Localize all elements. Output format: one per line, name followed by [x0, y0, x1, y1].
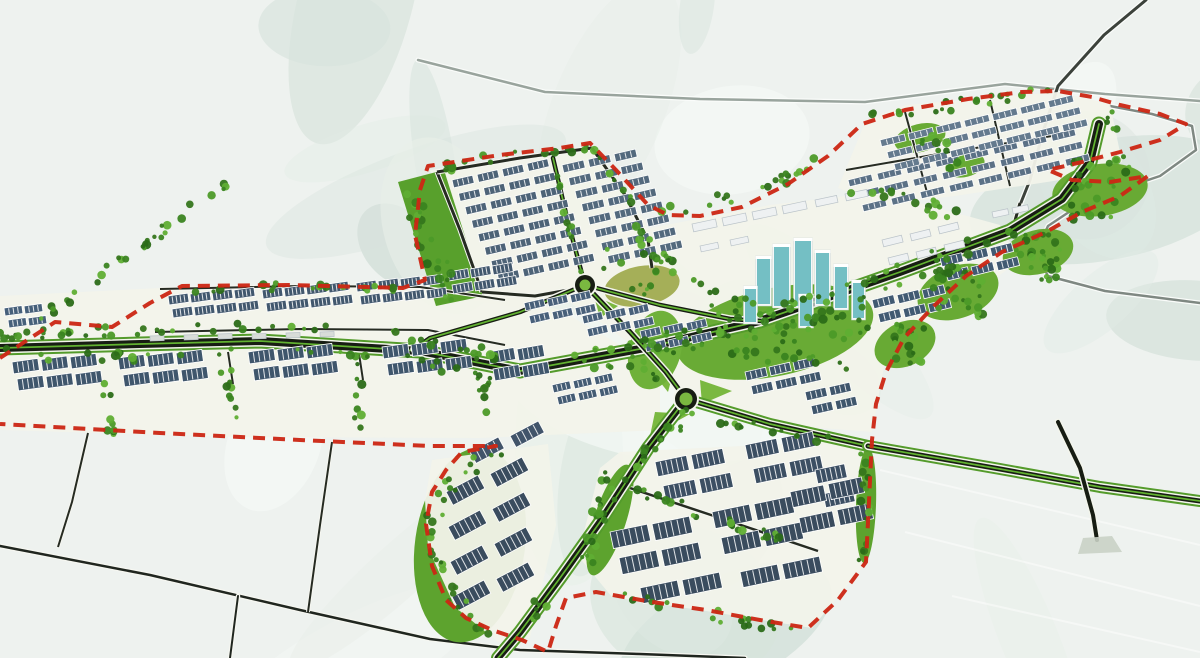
tree	[736, 302, 742, 308]
tree	[177, 214, 186, 223]
tree	[857, 497, 866, 506]
tree	[976, 284, 981, 289]
tree	[468, 462, 474, 468]
roadside-shed	[286, 333, 300, 338]
tree	[742, 347, 750, 355]
tree	[859, 468, 867, 476]
tree	[934, 258, 940, 264]
tree	[357, 424, 363, 430]
tree	[880, 192, 889, 201]
tree	[445, 260, 449, 264]
tree	[763, 533, 771, 541]
tree	[418, 337, 424, 343]
tree	[0, 334, 8, 342]
tree	[751, 420, 755, 424]
tree	[353, 392, 359, 398]
tree	[970, 279, 975, 284]
tree	[94, 279, 100, 285]
tree	[97, 271, 106, 280]
tree	[742, 295, 749, 302]
tree	[488, 160, 493, 165]
tree	[426, 341, 435, 350]
tree	[223, 382, 231, 390]
tree	[1005, 98, 1011, 104]
tree	[106, 415, 114, 423]
tree	[624, 343, 632, 351]
tree	[419, 357, 426, 364]
tree	[569, 223, 575, 229]
tree	[812, 359, 820, 367]
tree	[629, 286, 635, 292]
tree	[857, 558, 861, 562]
tree	[128, 353, 137, 362]
tree	[598, 503, 602, 507]
tree	[779, 429, 783, 433]
roadside-shed	[150, 336, 164, 341]
tree	[135, 332, 140, 337]
tree	[727, 318, 732, 323]
tree	[1047, 265, 1056, 274]
tree	[652, 446, 658, 452]
tree	[355, 362, 359, 366]
tree	[338, 350, 342, 354]
tree	[177, 352, 184, 359]
tree	[533, 612, 540, 619]
tree	[446, 476, 452, 482]
tree	[1093, 195, 1101, 203]
tree	[761, 317, 769, 325]
tree	[221, 187, 225, 191]
tree	[434, 358, 441, 365]
tree	[865, 508, 873, 516]
tree	[434, 557, 439, 562]
tree	[486, 350, 495, 359]
tree	[50, 306, 56, 312]
tree	[357, 411, 366, 420]
tree	[99, 357, 106, 364]
tree	[435, 258, 441, 264]
tree	[664, 329, 669, 334]
tower-cap	[744, 286, 758, 289]
tree	[739, 425, 744, 430]
tower-cap	[773, 244, 791, 247]
tree	[783, 170, 790, 177]
tree	[1043, 266, 1048, 271]
tree	[542, 602, 550, 610]
tree	[641, 487, 647, 493]
tree	[652, 268, 659, 275]
tree	[786, 305, 794, 313]
tree	[911, 199, 919, 207]
tree	[869, 189, 877, 197]
tree	[609, 486, 615, 492]
tree	[773, 177, 779, 183]
tree	[856, 318, 861, 323]
tree	[729, 200, 734, 205]
tree	[1029, 265, 1034, 270]
tree	[1028, 253, 1036, 261]
tree	[152, 235, 156, 239]
tree	[904, 342, 913, 351]
tree	[1086, 162, 1095, 171]
tree	[1039, 256, 1045, 262]
master-plan-viewport	[0, 0, 1200, 658]
tree	[440, 513, 445, 518]
tree	[163, 230, 168, 235]
tree	[664, 347, 670, 353]
tree	[620, 187, 627, 194]
tree	[104, 263, 110, 269]
tree	[311, 286, 315, 290]
tree	[116, 355, 120, 359]
tower-cap	[834, 264, 849, 267]
tree	[192, 288, 200, 296]
tree	[1106, 160, 1113, 167]
tree	[612, 178, 616, 182]
tree	[919, 272, 927, 280]
tree	[601, 517, 608, 524]
tree	[707, 203, 712, 208]
tree	[964, 298, 972, 306]
tree	[1058, 248, 1062, 252]
tree	[160, 224, 164, 228]
tree	[769, 428, 777, 436]
tree	[1068, 202, 1075, 209]
tree	[146, 352, 150, 356]
tree	[186, 201, 194, 209]
tree	[1072, 185, 1079, 192]
tree	[234, 415, 238, 419]
tree	[845, 282, 850, 287]
tree	[930, 284, 937, 291]
tree	[751, 348, 760, 357]
tree	[480, 384, 489, 393]
tree	[845, 329, 853, 337]
tree	[944, 214, 950, 220]
tree	[716, 311, 721, 316]
tree	[66, 331, 72, 337]
tree	[666, 202, 675, 211]
tree	[406, 214, 413, 221]
tree	[716, 419, 725, 428]
roadside-shed-roof	[218, 334, 232, 339]
tree	[723, 324, 728, 329]
tree	[389, 284, 398, 293]
tree	[794, 171, 800, 177]
tree	[484, 630, 492, 638]
tree	[355, 377, 360, 382]
tree	[626, 362, 634, 370]
tree	[499, 452, 504, 457]
tree	[645, 594, 650, 599]
tree	[439, 560, 443, 564]
tree	[1010, 231, 1018, 239]
tree	[1054, 256, 1060, 262]
tree	[978, 294, 982, 298]
tree	[655, 257, 660, 262]
tree	[847, 189, 855, 197]
tree	[464, 598, 470, 604]
tree	[734, 347, 740, 353]
tree	[745, 622, 752, 629]
tree	[474, 356, 479, 361]
tree	[946, 164, 954, 172]
tree	[567, 232, 571, 236]
tree	[731, 296, 738, 303]
tree	[14, 332, 22, 340]
tree	[403, 190, 411, 198]
tree	[859, 304, 866, 311]
tree	[794, 433, 800, 439]
tree	[805, 326, 811, 332]
tree	[937, 253, 943, 259]
tree	[228, 367, 235, 374]
tree	[738, 526, 747, 535]
tree	[641, 336, 648, 343]
tree	[883, 269, 889, 275]
tree	[781, 330, 788, 337]
roadside-shed	[320, 332, 334, 337]
tree	[933, 109, 939, 115]
tree	[772, 312, 776, 316]
tree	[633, 463, 642, 472]
tree	[170, 328, 175, 333]
tree	[418, 210, 422, 214]
tree	[588, 538, 595, 545]
roundabout-south-island	[680, 393, 693, 406]
tree	[645, 287, 649, 291]
tree	[458, 347, 464, 353]
tree	[101, 380, 108, 387]
tree	[352, 415, 357, 420]
tree	[450, 590, 457, 597]
tree	[897, 282, 903, 288]
tree	[646, 236, 653, 243]
tree	[346, 351, 355, 360]
tree	[434, 265, 441, 272]
tree	[937, 204, 943, 210]
tree	[983, 239, 991, 247]
tree	[1052, 241, 1058, 247]
tree	[116, 255, 121, 260]
tree	[758, 625, 766, 633]
tree	[488, 376, 493, 381]
tree	[679, 409, 686, 416]
tree	[590, 363, 599, 372]
tree	[870, 275, 878, 283]
tree	[1046, 277, 1053, 284]
tree	[158, 235, 164, 241]
tree	[642, 360, 647, 365]
tree	[844, 366, 849, 371]
tree	[864, 325, 871, 332]
tree	[1121, 168, 1130, 177]
tree	[757, 311, 764, 318]
tree	[211, 289, 215, 293]
tree	[773, 347, 780, 354]
tree	[671, 350, 676, 355]
tree	[640, 250, 648, 258]
tree	[1076, 171, 1083, 178]
tree	[195, 322, 200, 327]
tree	[901, 192, 905, 196]
tree	[371, 283, 378, 290]
tree	[1047, 258, 1054, 265]
tree	[622, 476, 629, 483]
tree	[734, 314, 742, 322]
tree	[689, 411, 695, 417]
tree	[933, 269, 939, 275]
tree	[84, 349, 91, 356]
tree	[908, 360, 913, 365]
tree	[255, 327, 262, 334]
tree	[638, 283, 642, 287]
tree	[601, 266, 606, 271]
tree	[908, 112, 914, 118]
tree	[100, 392, 106, 398]
tree	[861, 279, 869, 287]
tree	[489, 453, 494, 458]
tree	[122, 256, 129, 263]
tree	[478, 343, 486, 351]
tree	[681, 328, 687, 334]
tree	[966, 305, 971, 310]
tree	[800, 296, 807, 303]
tree	[617, 259, 625, 267]
roadside-shed-roof	[320, 332, 334, 337]
office-tower	[834, 264, 849, 310]
tower-cap	[794, 238, 813, 241]
tree	[678, 428, 683, 433]
tree	[675, 332, 683, 340]
tree	[1017, 251, 1024, 258]
tree	[107, 332, 115, 340]
tree	[790, 319, 795, 324]
tree	[964, 250, 973, 259]
tree	[210, 328, 217, 335]
tree	[920, 141, 925, 146]
tree	[435, 490, 442, 497]
roadside-shed-roof	[286, 333, 300, 338]
tree	[921, 325, 928, 332]
tree	[775, 322, 783, 330]
tree	[357, 380, 366, 389]
tree	[964, 236, 972, 244]
tree	[435, 274, 444, 283]
tree	[1046, 232, 1051, 237]
tree	[641, 458, 646, 463]
tree	[571, 352, 578, 359]
tree	[645, 496, 649, 500]
tree	[302, 327, 306, 331]
tree	[560, 209, 568, 217]
tree	[595, 496, 601, 502]
tree	[58, 331, 66, 339]
tree	[947, 107, 955, 115]
tree	[974, 303, 982, 311]
tree	[752, 335, 758, 341]
tree	[207, 191, 215, 199]
tree	[944, 269, 953, 278]
tree	[1040, 249, 1046, 255]
tree	[939, 275, 947, 283]
tree	[951, 295, 959, 303]
tree	[823, 299, 830, 306]
tree	[1110, 109, 1115, 114]
tree	[911, 351, 915, 355]
tree	[612, 497, 618, 503]
tree	[781, 353, 789, 361]
tree	[585, 554, 589, 558]
roadside-shed-roof	[184, 335, 198, 340]
tree	[1109, 215, 1114, 220]
tree	[659, 438, 663, 442]
tree	[868, 110, 876, 118]
tree	[790, 298, 794, 302]
tree	[893, 340, 897, 344]
tree	[679, 499, 684, 504]
tree	[716, 328, 725, 337]
tree	[588, 507, 597, 516]
tree	[83, 333, 88, 338]
tree	[774, 539, 778, 543]
tree	[987, 101, 993, 107]
office-tower	[773, 244, 791, 308]
tree	[605, 247, 610, 252]
tree	[929, 249, 934, 254]
tree	[630, 354, 635, 359]
tree	[365, 354, 370, 359]
tree	[932, 138, 941, 147]
tree	[102, 323, 109, 330]
tree	[464, 347, 470, 353]
tree	[217, 352, 221, 356]
tree	[580, 555, 584, 559]
tree	[751, 329, 757, 335]
tree	[593, 348, 598, 353]
tree	[691, 513, 696, 518]
tree	[714, 191, 721, 198]
tree	[140, 325, 147, 332]
tree	[974, 97, 980, 103]
roadside-shed	[218, 334, 232, 339]
tree	[158, 329, 165, 336]
tree	[392, 328, 400, 336]
tree	[743, 354, 749, 360]
tree	[744, 334, 749, 339]
tree	[1104, 119, 1110, 125]
tree	[940, 107, 944, 111]
tree	[826, 307, 834, 315]
tree	[1121, 154, 1126, 159]
tree	[453, 364, 461, 372]
tree	[589, 559, 596, 566]
tree	[860, 549, 865, 554]
tree	[643, 343, 648, 348]
tree	[796, 349, 802, 355]
tree	[428, 237, 434, 243]
roundabout-north-island	[580, 280, 591, 291]
tree	[765, 359, 771, 365]
tree	[102, 333, 107, 338]
tree	[924, 207, 930, 213]
tree	[296, 347, 300, 351]
tree	[727, 519, 735, 527]
tree	[476, 372, 483, 379]
office-tower	[756, 256, 772, 306]
tower-glass	[757, 258, 770, 304]
tower-cap	[815, 250, 831, 253]
